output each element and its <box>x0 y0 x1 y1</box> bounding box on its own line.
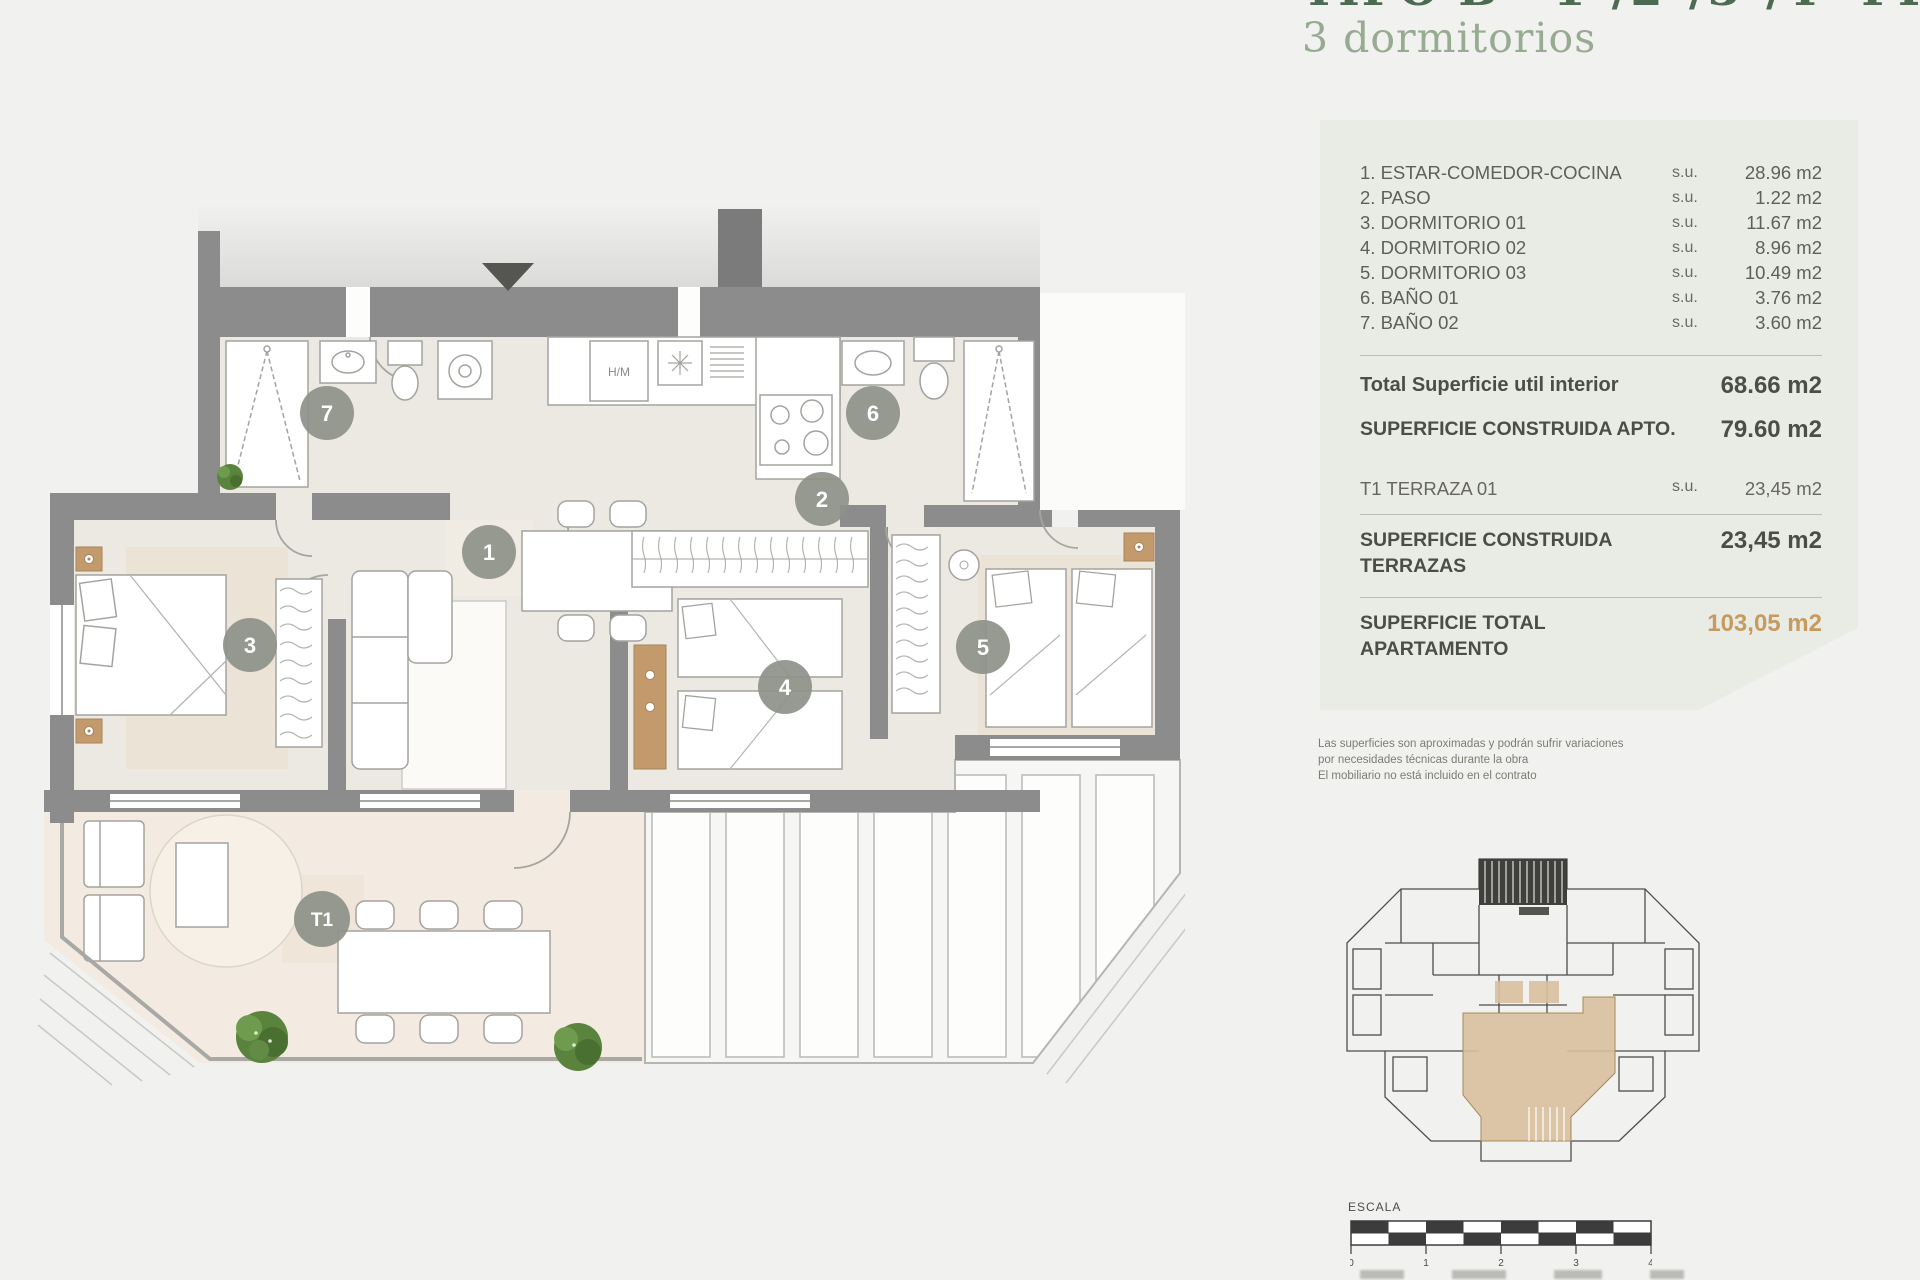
total-util-row: Total Superficie util interior 68.66 m2 <box>1360 372 1822 400</box>
room-area-row: 3. DORMITORIO 01s.u.11.67 m2 <box>1360 210 1822 235</box>
tree-icon <box>554 1023 602 1071</box>
badge-terrace-t1: T1 <box>294 891 350 947</box>
badge-room-7: 7 <box>300 386 354 440</box>
svg-text:3: 3 <box>1573 1258 1579 1269</box>
badge-room-2: 2 <box>795 472 849 526</box>
room-area-row: 6. BAÑO 01s.u.3.76 m2 <box>1360 285 1822 310</box>
disclaimer: Las superficies son aproximadas y podrán… <box>1318 736 1624 784</box>
room-area-row: 1. ESTAR-COMEDOR-COCINAs.u.28.96 m2 <box>1360 160 1822 185</box>
construida-apto-row: SUPERFICIE CONSTRUIDA APTO. 79.60 m2 <box>1360 416 1822 444</box>
scale-bar-segments <box>1351 1221 1651 1254</box>
total-apartamento-row: SUPERFICIE TOTALAPARTAMENTO 103,05 m2 <box>1360 610 1822 662</box>
badge-room-4: 4 <box>758 660 812 714</box>
floor-plan-drawing: H/M <box>30 175 1185 1185</box>
badge-room-3: 3 <box>223 618 277 672</box>
kitchen-appliance-label: H/M <box>608 365 630 379</box>
floor-plan: H/M <box>30 175 1185 1185</box>
plant-icon <box>217 464 243 490</box>
tree-icon <box>236 1011 288 1063</box>
svg-text:1: 1 <box>1423 1258 1429 1269</box>
room-area-row: 7. BAÑO 02s.u.3.60 m2 <box>1360 310 1822 335</box>
building-key-plan <box>1333 845 1713 1175</box>
svg-text:3: 3 <box>244 633 256 658</box>
badge-room-5: 5 <box>956 620 1010 674</box>
terraza-row: T1 TERRAZA 01 s.u. 23,45 m2 <box>1360 478 1822 500</box>
svg-text:1: 1 <box>483 540 495 565</box>
elevator-core <box>1479 859 1567 915</box>
svg-text:4: 4 <box>779 675 792 700</box>
areas-panel: 1. ESTAR-COMEDOR-COCINAs.u.28.96 m2 2. P… <box>1320 120 1858 710</box>
svg-text:5: 5 <box>977 635 989 660</box>
room-areas-list: 1. ESTAR-COMEDOR-COCINAs.u.28.96 m2 2. P… <box>1360 160 1822 335</box>
scale-ticks: 0 1 2 3 4 <box>1350 1258 1652 1269</box>
cropped-bottom-text <box>1360 1270 1684 1279</box>
svg-text:0: 0 <box>1350 1258 1354 1269</box>
svg-text:7: 7 <box>321 401 333 426</box>
divider <box>1360 597 1822 598</box>
svg-text:4: 4 <box>1648 1258 1652 1269</box>
svg-text:2: 2 <box>816 487 828 512</box>
svg-text:T1: T1 <box>311 910 334 931</box>
construida-terrazas-row: SUPERFICIE CONSTRUIDATERRAZAS 23,45 m2 <box>1360 527 1822 579</box>
divider <box>1360 355 1822 356</box>
svg-text:6: 6 <box>867 401 879 426</box>
page-title-cropped: TIPO B · 1ª/2ª/3ª/4ª PLANTA <box>1302 0 1918 12</box>
page-subtitle: 3 dormitorios <box>1302 14 1596 62</box>
badge-room-1: 1 <box>462 525 516 579</box>
scale-bar: 0 1 2 3 4 <box>1350 1220 1652 1270</box>
svg-text:2: 2 <box>1498 1258 1504 1269</box>
scale-label: ESCALA <box>1348 1200 1401 1214</box>
room-area-row: 2. PASOs.u.1.22 m2 <box>1360 185 1822 210</box>
divider <box>1360 514 1822 515</box>
brochure-page: { "page": {"bg": "#f1f1ef"}, "header": {… <box>0 0 1920 1280</box>
room-area-row: 4. DORMITORIO 02s.u.8.96 m2 <box>1360 235 1822 260</box>
room-area-row: 5. DORMITORIO 03s.u.10.49 m2 <box>1360 260 1822 285</box>
badge-room-6: 6 <box>846 386 900 440</box>
total-apartment-value: 103,05 m2 <box>1707 610 1822 638</box>
key-plan-drawing <box>1333 845 1713 1175</box>
